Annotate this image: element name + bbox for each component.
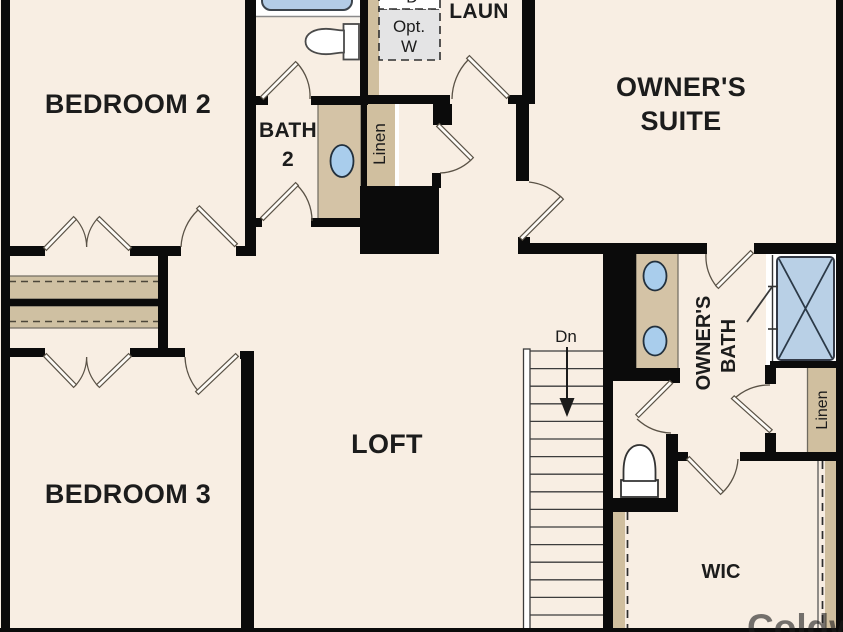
svg-text:Linen: Linen [370,123,389,165]
svg-text:2: 2 [282,148,294,171]
svg-text:WIC: WIC [702,561,741,583]
svg-text:Opt.: Opt. [393,17,425,36]
svg-text:D: D [406,0,418,7]
svg-text:Coldwe: Coldwe [747,607,843,632]
svg-text:BATH: BATH [718,319,740,373]
svg-text:Linen: Linen [814,390,831,429]
svg-text:BEDROOM 2: BEDROOM 2 [45,89,211,119]
svg-text:OWNER'S: OWNER'S [616,72,746,102]
svg-text:OWNER'S: OWNER'S [693,296,715,391]
svg-text:LOFT: LOFT [351,429,423,459]
svg-text:LAUN: LAUN [449,0,509,23]
svg-text:SUITE: SUITE [640,106,721,136]
svg-text:BATH: BATH [259,119,317,142]
svg-text:BEDROOM 3: BEDROOM 3 [45,479,211,509]
svg-text:Dn: Dn [555,327,577,346]
svg-text:W: W [401,37,417,56]
